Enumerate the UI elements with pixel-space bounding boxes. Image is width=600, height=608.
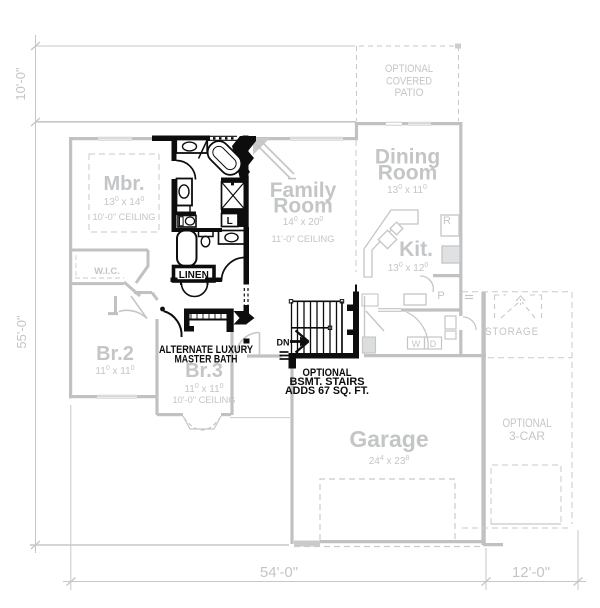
svg-text:OPTIONAL: OPTIONAL bbox=[503, 418, 553, 430]
svg-text:130 x 120: 130 x 120 bbox=[388, 262, 429, 274]
svg-text:W.I.C.: W.I.C. bbox=[94, 266, 120, 277]
svg-text:MASTER BATH: MASTER BATH bbox=[175, 354, 238, 366]
svg-text:12'-0": 12'-0" bbox=[512, 564, 550, 581]
svg-text:55'-0": 55'-0" bbox=[14, 315, 29, 349]
svg-text:L: L bbox=[227, 216, 233, 227]
svg-text:COVERED: COVERED bbox=[386, 76, 432, 88]
svg-text:Br.2: Br.2 bbox=[96, 343, 134, 365]
svg-text:P: P bbox=[437, 290, 444, 302]
svg-text:D: D bbox=[430, 339, 437, 349]
svg-text:Room: Room bbox=[378, 162, 438, 185]
svg-text:244 x 238: 244 x 238 bbox=[369, 455, 410, 467]
svg-text:Mbr.: Mbr. bbox=[103, 173, 144, 195]
svg-text:10'-0" CEILING: 10'-0" CEILING bbox=[173, 395, 236, 406]
svg-text:Garage: Garage bbox=[349, 426, 428, 452]
svg-text:54'-0": 54'-0" bbox=[260, 564, 298, 581]
svg-text:11'-0" CEILING: 11'-0" CEILING bbox=[272, 234, 335, 245]
svg-text:Room: Room bbox=[273, 195, 333, 218]
svg-text:LINEN: LINEN bbox=[179, 270, 209, 281]
svg-text:140 x 200: 140 x 200 bbox=[283, 216, 324, 228]
svg-text:3-CAR: 3-CAR bbox=[509, 431, 545, 443]
svg-text:130 x 140: 130 x 140 bbox=[104, 196, 145, 208]
svg-text:PATIO: PATIO bbox=[395, 87, 424, 99]
svg-text:130 x 110: 130 x 110 bbox=[387, 184, 427, 196]
svg-text:STORAGE: STORAGE bbox=[485, 326, 539, 338]
svg-text:110 x 110: 110 x 110 bbox=[184, 383, 223, 395]
svg-text:R: R bbox=[443, 215, 451, 227]
svg-text:OPTIONAL: OPTIONAL bbox=[385, 63, 433, 75]
svg-text:ADDS 67 SQ. FT.: ADDS 67 SQ. FT. bbox=[285, 385, 369, 397]
svg-text:10'-0" CEILING: 10'-0" CEILING bbox=[93, 212, 156, 223]
svg-text:DN: DN bbox=[277, 338, 290, 348]
svg-text:W: W bbox=[412, 339, 421, 349]
svg-text:10'-0": 10'-0" bbox=[13, 67, 28, 101]
svg-text:Kit.: Kit. bbox=[399, 238, 433, 261]
svg-text:110 x 110: 110 x 110 bbox=[95, 365, 134, 377]
